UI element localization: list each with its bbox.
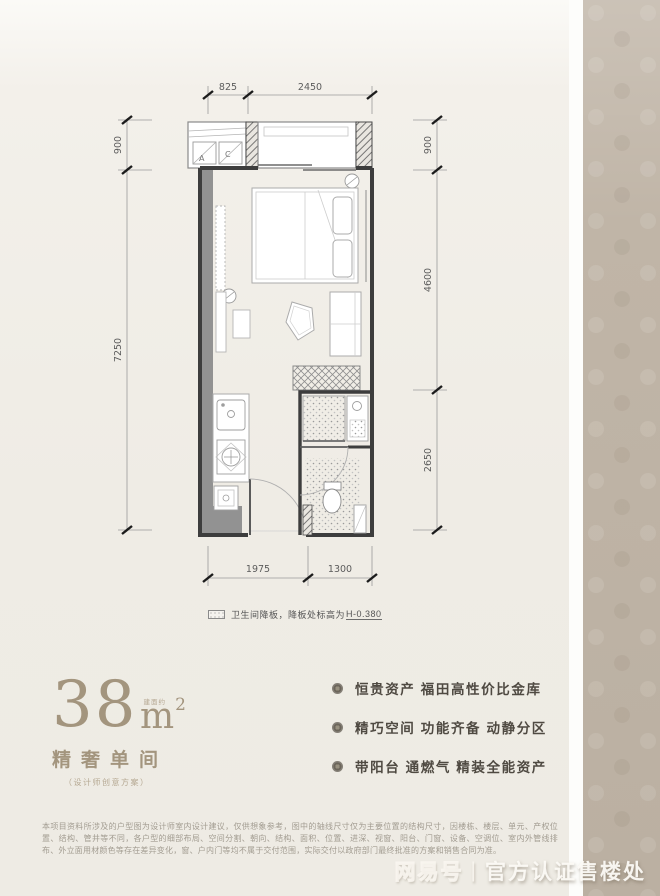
room-title: 精奢单间 <box>52 745 186 772</box>
toilet-room <box>303 458 366 535</box>
svg-text:2650: 2650 <box>423 448 434 472</box>
sofa <box>330 292 361 356</box>
legend-elevation-value: H-0.380 <box>346 609 382 620</box>
svg-text:2450: 2450 <box>298 82 322 93</box>
side-table <box>286 302 314 340</box>
svg-text:4600: 4600 <box>423 268 434 292</box>
area-value: 38 <box>52 676 137 735</box>
kitchen-counter <box>213 394 249 510</box>
floor-plan: 825 2450 900 7250 900 4600 2650 <box>0 0 570 660</box>
legend-text: 卫生间降板，降板处标高为 <box>231 608 345 621</box>
rosette-bullet-icon <box>332 683 343 694</box>
rosette-bullet-icon <box>332 722 343 733</box>
area-exponent: 2 <box>175 695 186 715</box>
shower-room <box>303 396 345 441</box>
vanity <box>347 396 368 441</box>
area-unit: m <box>140 702 174 733</box>
dimension-left: 900 7250 <box>113 116 152 534</box>
toilet <box>323 482 341 513</box>
decor-side-band <box>583 0 660 896</box>
wardrobe <box>293 366 360 390</box>
svg-text:1300: 1300 <box>328 564 352 575</box>
ac-label-c: C <box>225 150 231 159</box>
disclaimer-text: 本项目资料所涉及的户型图为设计师室内设计建议，仅供想象参考，图中的轴线尺寸仅为主… <box>42 821 558 857</box>
entry-door <box>248 479 306 535</box>
watermark: 网易号 | 官方认证售楼处 <box>395 856 646 886</box>
floor-plan-svg: 825 2450 900 7250 900 4600 2650 <box>0 0 570 660</box>
svg-text:900: 900 <box>423 136 434 154</box>
rosette-bullet-icon <box>332 761 343 772</box>
selling-point-text: 恒贵资产 福田高性价比金库 <box>355 678 542 698</box>
watermark-separator: | <box>471 859 478 883</box>
ac-label-a: A <box>199 154 205 163</box>
dimension-top: 825 2450 <box>203 82 377 114</box>
room-subtitle: （设计师创意方案） <box>52 777 186 788</box>
selling-point-row: 带阳台 通燃气 精装全能资产 <box>332 756 547 776</box>
tv-cabinet <box>216 206 250 352</box>
selling-point-text: 精巧空间 功能齐备 动静分区 <box>355 717 547 737</box>
watermark-brand: 网易号 <box>395 856 464 886</box>
svg-text:1975: 1975 <box>246 564 270 575</box>
svg-text:900: 900 <box>113 136 124 154</box>
legend: 卫生间降板，降板处标高为 H-0.380 <box>208 608 382 621</box>
watermark-label: 官方认证售楼处 <box>485 856 646 886</box>
selling-point-text: 带阳台 通燃气 精装全能资产 <box>355 756 547 776</box>
dimension-bottom: 1975 1300 <box>203 546 377 586</box>
area-block: 38 建面约 m 2 精奢单间 （设计师创意方案） <box>52 676 186 788</box>
bed <box>252 188 358 283</box>
drop-slab-hatch-swatch <box>208 610 225 619</box>
band-white-gap <box>569 0 583 896</box>
ac-platform: A C <box>188 122 246 168</box>
svg-text:7250: 7250 <box>113 338 124 362</box>
washer <box>214 486 238 510</box>
bathroom <box>300 392 372 535</box>
balcony <box>246 122 372 170</box>
dimension-right: 900 4600 2650 <box>413 116 447 534</box>
selling-point-row: 精巧空间 功能齐备 动静分区 <box>332 717 547 737</box>
svg-text:825: 825 <box>219 82 237 93</box>
selling-point-row: 恒贵资产 福田高性价比金库 <box>332 678 547 698</box>
selling-points: 恒贵资产 福田高性价比金库 精巧空间 功能齐备 动静分区 带阳台 通燃气 精装全… <box>332 678 547 795</box>
